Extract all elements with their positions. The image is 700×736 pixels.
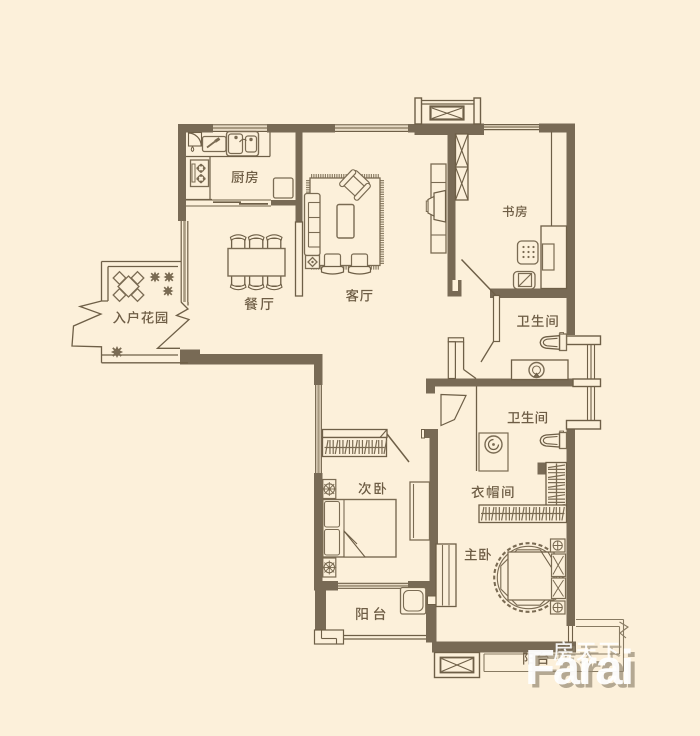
svg-text:Farai: Farai — [525, 641, 632, 695]
